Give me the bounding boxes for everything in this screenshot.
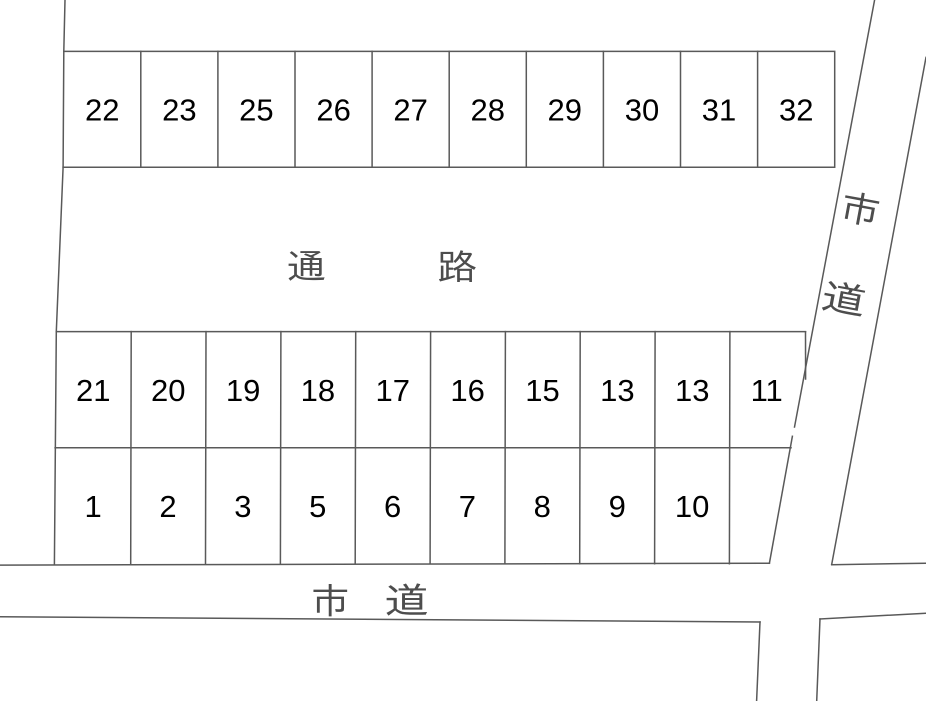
- svg-text:8: 8: [534, 489, 551, 524]
- svg-text:9: 9: [609, 489, 626, 524]
- svg-text:16: 16: [450, 373, 484, 408]
- svg-text:31: 31: [702, 92, 736, 127]
- svg-text:11: 11: [751, 373, 783, 408]
- svg-text:23: 23: [162, 92, 196, 127]
- svg-text:15: 15: [525, 373, 559, 408]
- svg-text:27: 27: [393, 92, 427, 127]
- svg-text:13: 13: [600, 373, 634, 408]
- svg-text:6: 6: [384, 489, 401, 524]
- svg-text:5: 5: [309, 489, 326, 524]
- svg-text:21: 21: [76, 373, 110, 408]
- svg-text:32: 32: [779, 92, 813, 127]
- svg-text:28: 28: [471, 92, 505, 127]
- svg-text:3: 3: [234, 489, 251, 524]
- svg-text:26: 26: [316, 92, 350, 127]
- svg-text:19: 19: [226, 373, 260, 408]
- svg-text:1: 1: [84, 489, 101, 524]
- svg-text:25: 25: [239, 92, 273, 127]
- svg-text:17: 17: [376, 373, 410, 408]
- svg-text:20: 20: [151, 373, 185, 408]
- svg-text:13: 13: [675, 373, 709, 408]
- svg-text:29: 29: [548, 92, 582, 127]
- svg-text:7: 7: [459, 489, 476, 524]
- svg-text:30: 30: [625, 92, 659, 127]
- svg-text:2: 2: [159, 489, 176, 524]
- svg-text:10: 10: [675, 489, 709, 524]
- svg-text:18: 18: [301, 373, 335, 408]
- svg-text:22: 22: [85, 92, 119, 127]
